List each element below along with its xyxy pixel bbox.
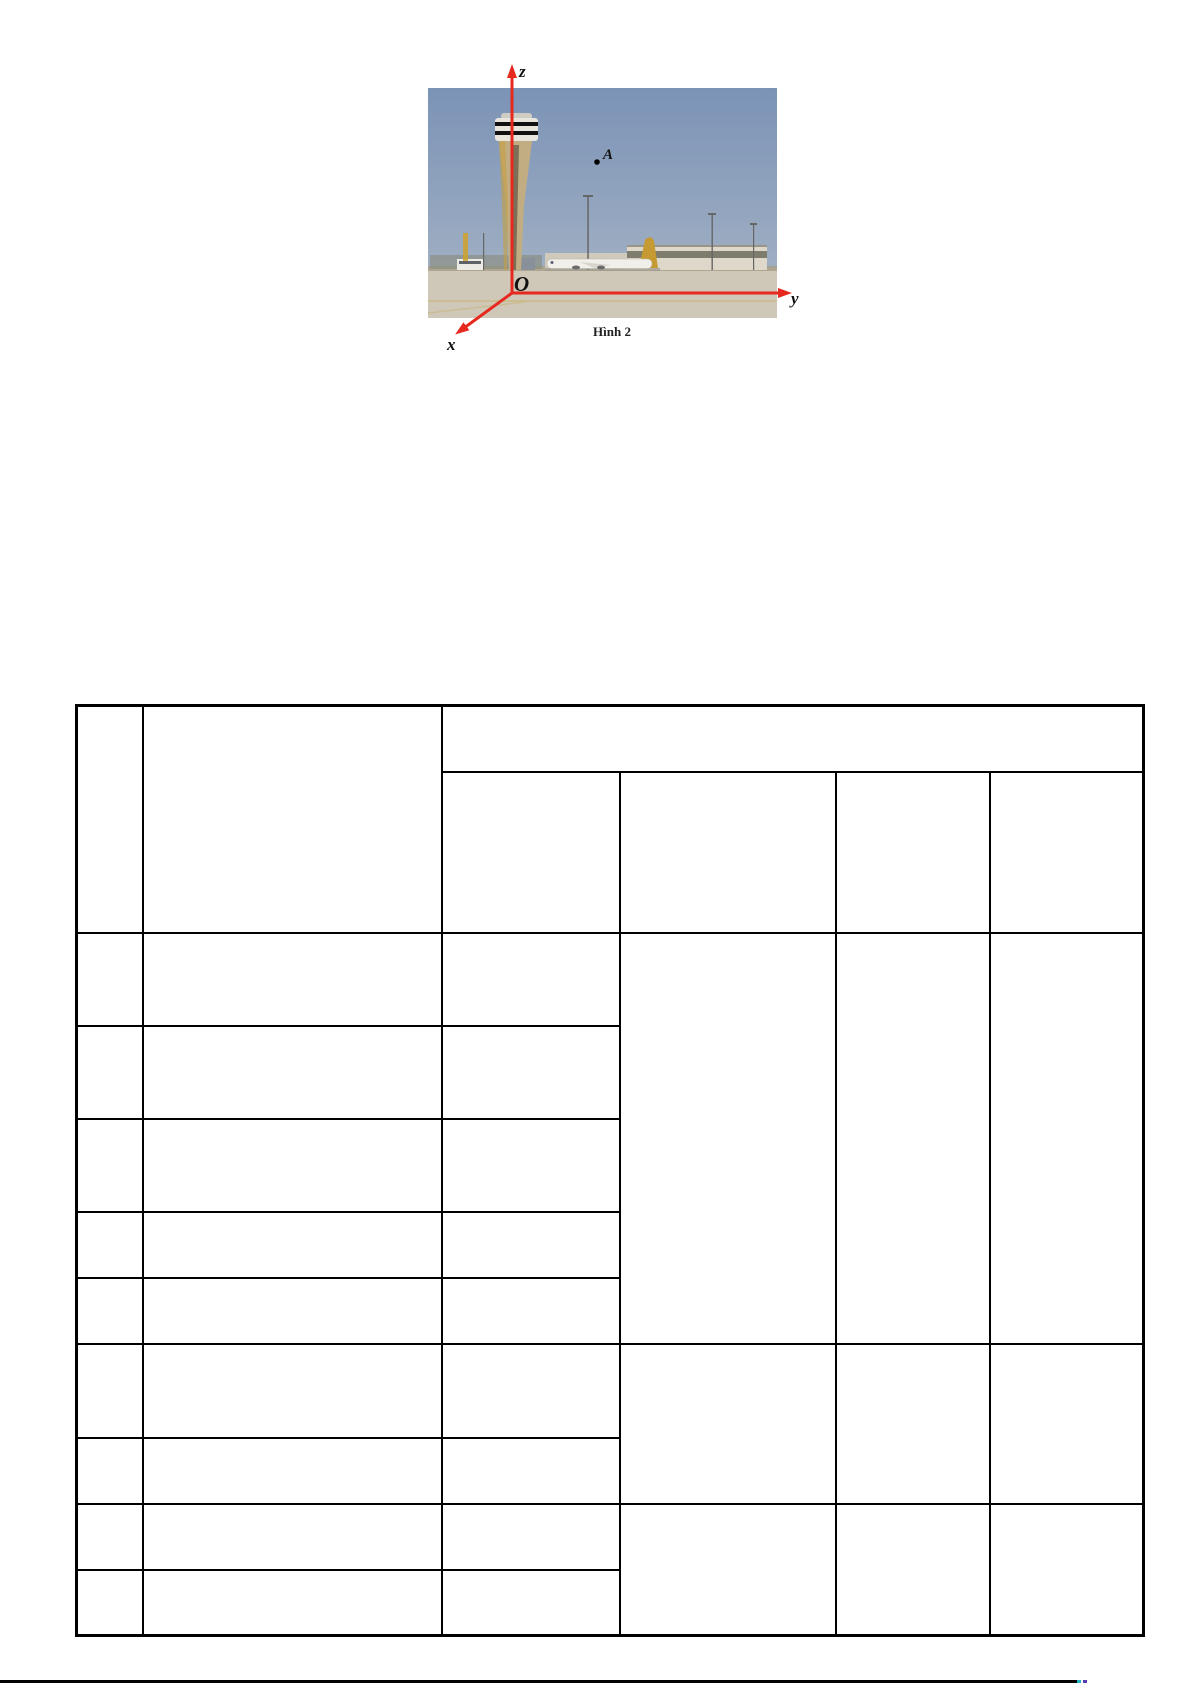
body-cell-r5c3 bbox=[442, 1278, 620, 1344]
body-cell-r3c2 bbox=[143, 1119, 442, 1212]
merged-cell-c5-a bbox=[836, 933, 990, 1344]
subheader-cell-2 bbox=[620, 772, 836, 933]
body-cell-r6c1 bbox=[77, 1344, 143, 1438]
body-cell-r3c1 bbox=[77, 1119, 143, 1212]
body-cell-r4c2 bbox=[143, 1212, 442, 1278]
point-a-dot bbox=[594, 159, 600, 165]
body-cell-r8c1 bbox=[77, 1504, 143, 1570]
subheader-cell-3 bbox=[836, 772, 990, 933]
table-header-row-1 bbox=[77, 706, 1144, 772]
body-cell-r3c3 bbox=[442, 1119, 620, 1212]
table-row bbox=[77, 1344, 1144, 1438]
y-axis-label: y bbox=[789, 289, 799, 308]
body-cell-r6c3 bbox=[442, 1344, 620, 1438]
figure-canvas: z y x A O Hình 2 bbox=[395, 55, 815, 355]
body-cell-r8c3 bbox=[442, 1504, 620, 1570]
x-axis-label: x bbox=[446, 335, 456, 354]
merged-cell-c4-b bbox=[620, 1344, 836, 1504]
subheader-cell-1 bbox=[442, 772, 620, 933]
artifact-purple-speck bbox=[1083, 1680, 1087, 1683]
body-cell-r9c1 bbox=[77, 1570, 143, 1636]
merged-cell-c6-a bbox=[990, 933, 1144, 1344]
header-group-cell bbox=[442, 706, 1144, 772]
merged-cell-c6-c bbox=[990, 1504, 1144, 1636]
body-cell-r7c2 bbox=[143, 1438, 442, 1504]
header-cell-col2 bbox=[143, 706, 442, 933]
merged-cell-c4-c bbox=[620, 1504, 836, 1636]
body-cell-r5c2 bbox=[143, 1278, 442, 1344]
taxiway-line bbox=[428, 300, 777, 302]
answer-table bbox=[75, 704, 1145, 1637]
body-cell-r1c3 bbox=[442, 933, 620, 1026]
table-row bbox=[77, 933, 1144, 1026]
body-cell-r1c1 bbox=[77, 933, 143, 1026]
z-axis-label: z bbox=[518, 62, 526, 81]
body-cell-r2c1 bbox=[77, 1026, 143, 1119]
page-bottom-rule bbox=[0, 1680, 1078, 1683]
point-a-label: A bbox=[602, 147, 613, 163]
merged-cell-c5-b bbox=[836, 1344, 990, 1504]
body-cell-r2c2 bbox=[143, 1026, 442, 1119]
table-row bbox=[77, 1504, 1144, 1570]
body-cell-r1c2 bbox=[143, 933, 442, 1026]
body-cell-r8c2 bbox=[143, 1504, 442, 1570]
header-cell-col1 bbox=[77, 706, 143, 933]
yellow-pole bbox=[463, 233, 468, 261]
van bbox=[457, 259, 483, 270]
body-cell-r5c1 bbox=[77, 1278, 143, 1344]
body-cell-r2c3 bbox=[442, 1026, 620, 1119]
merged-cell-c6-b bbox=[990, 1344, 1144, 1504]
origin-label: O bbox=[514, 272, 529, 296]
subheader-cell-4 bbox=[990, 772, 1144, 933]
merged-cell-c5-c bbox=[836, 1504, 990, 1636]
body-cell-r9c2 bbox=[143, 1570, 442, 1636]
document-page: z y x A O Hình 2 bbox=[0, 0, 1192, 1685]
van-windows bbox=[459, 261, 481, 264]
body-cell-r9c3 bbox=[442, 1570, 620, 1636]
body-cell-r7c3 bbox=[442, 1438, 620, 1504]
body-cell-r4c3 bbox=[442, 1212, 620, 1278]
body-cell-r7c1 bbox=[77, 1438, 143, 1504]
merged-cell-c4-a bbox=[620, 933, 836, 1344]
body-cell-r6c2 bbox=[143, 1344, 442, 1438]
body-cell-r4c1 bbox=[77, 1212, 143, 1278]
figure-hinh-2: z y x A O Hình 2 bbox=[395, 55, 815, 355]
figure-caption: Hình 2 bbox=[593, 324, 631, 339]
airport-photo bbox=[428, 88, 777, 318]
artifact-cyan-speck bbox=[1077, 1680, 1081, 1683]
